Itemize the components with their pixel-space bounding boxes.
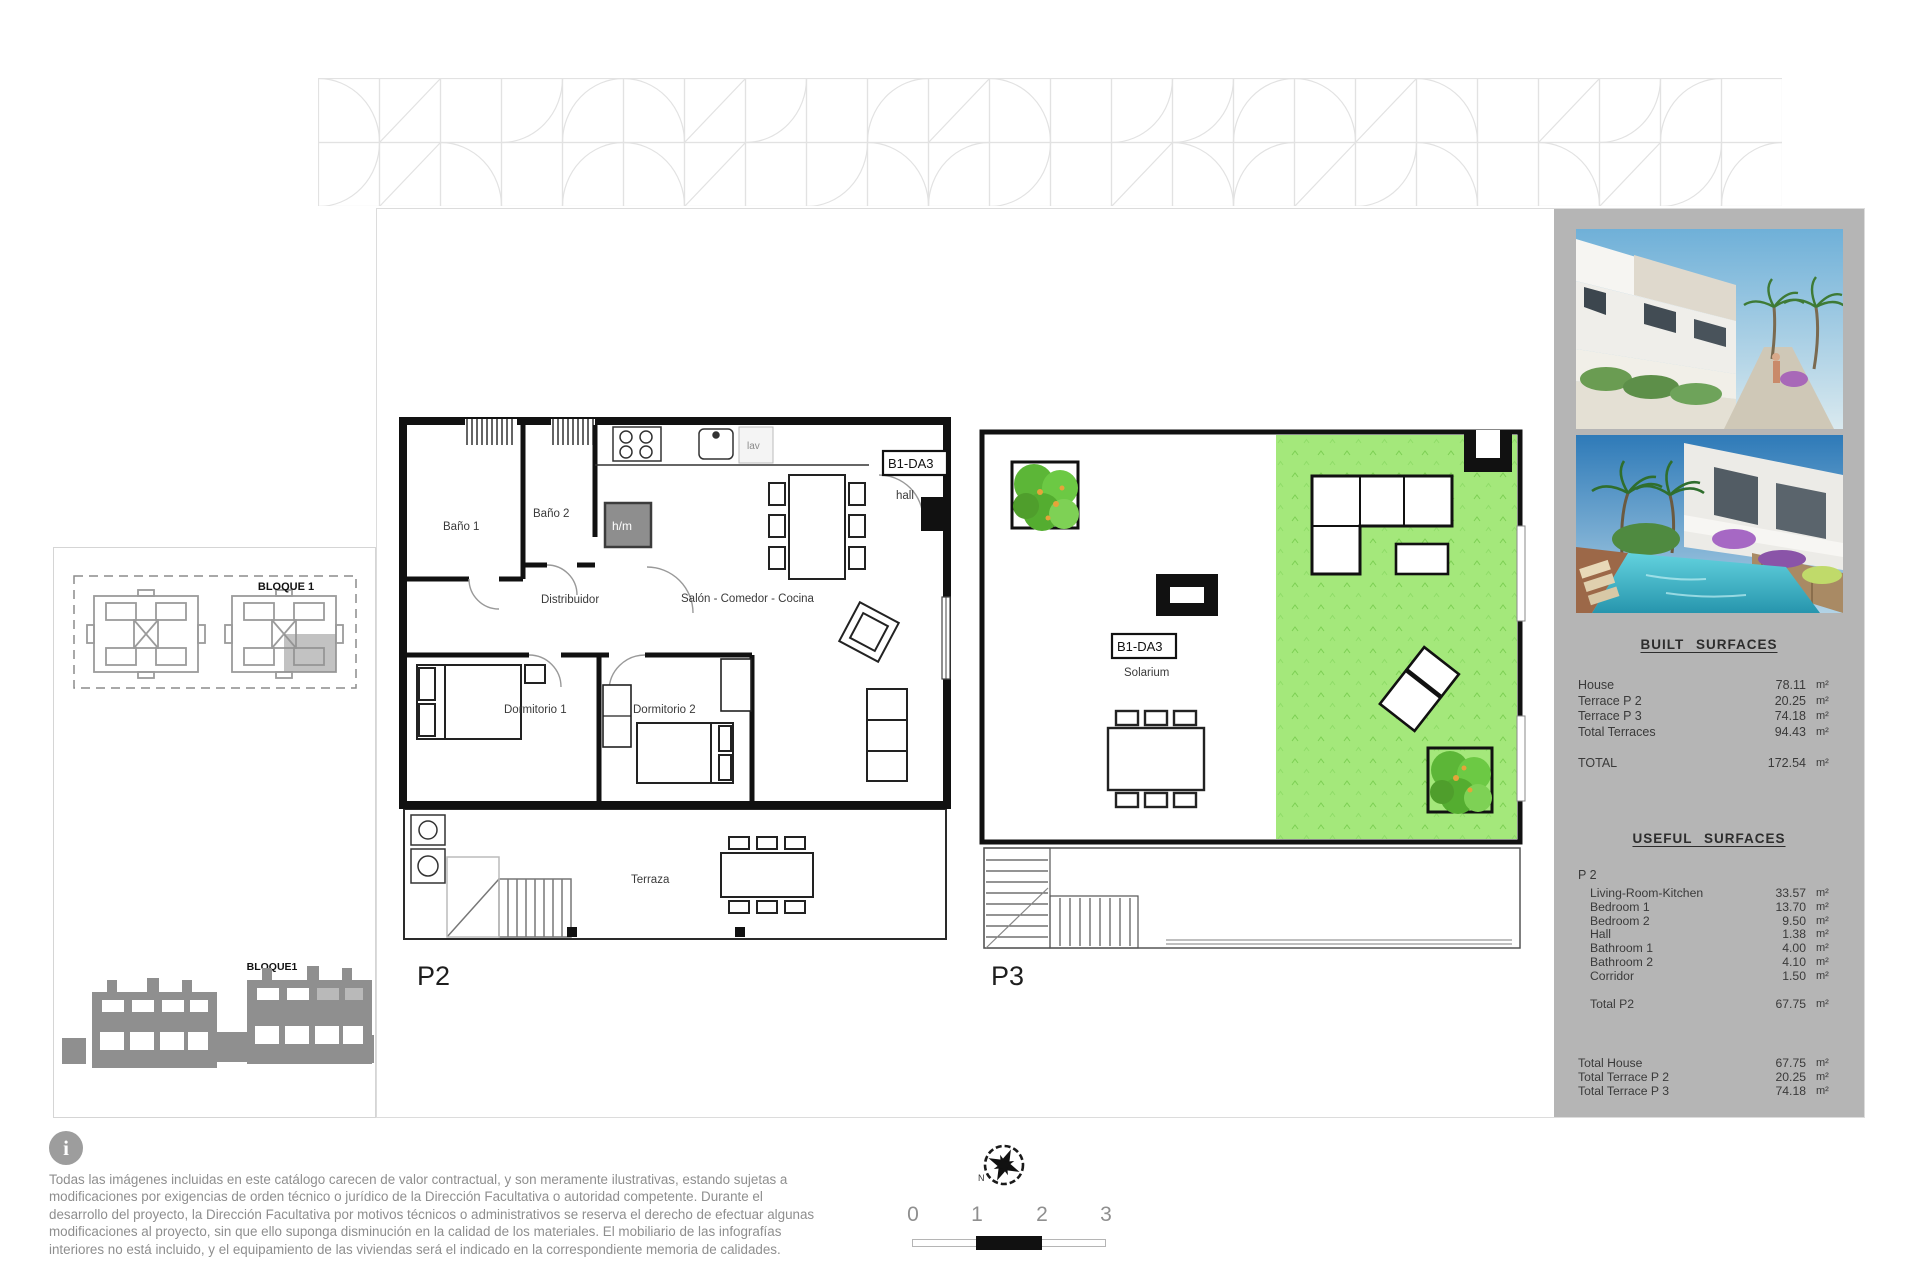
table-row: Bedroom 113.70m² xyxy=(1578,901,1840,915)
row-label: Bathroom 2 xyxy=(1578,956,1754,970)
p3-unit-tag: B1-DA3 xyxy=(1117,639,1163,654)
row-label: Terrace P 3 xyxy=(1578,709,1754,725)
row-label: Terrace P 2 xyxy=(1578,694,1754,710)
table-row: Hall1.38m² xyxy=(1578,928,1840,942)
scale-tick: 0 xyxy=(907,1203,919,1227)
p3-dining-table xyxy=(1108,711,1204,807)
room-label-terraza: Terraza xyxy=(631,874,670,886)
row-value: 67.75 xyxy=(1754,998,1806,1012)
row-unit: m² xyxy=(1806,998,1840,1012)
room-label-bano1: Baño 1 xyxy=(443,521,479,533)
scale-bar-segment xyxy=(976,1236,1042,1250)
table-row: Total Terraces94.43m² xyxy=(1578,725,1840,741)
row-value: 74.18 xyxy=(1754,1085,1806,1099)
row-value: 74.18 xyxy=(1754,709,1806,725)
hm-label: h/m xyxy=(612,519,632,533)
row-value: 94.43 xyxy=(1754,725,1806,741)
row-value: 78.11 xyxy=(1754,678,1806,694)
decorative-frieze xyxy=(318,78,1782,211)
row-unit: m² xyxy=(1806,942,1840,956)
building-footprint-2 xyxy=(225,590,343,678)
row-value: 13.70 xyxy=(1754,901,1806,915)
table-row: Total Terrace P 374.18m² xyxy=(1578,1085,1840,1099)
row-unit: m² xyxy=(1806,725,1840,741)
row-unit: m² xyxy=(1806,709,1840,725)
main-panel: lav h/m xyxy=(376,208,1865,1118)
row-unit: m² xyxy=(1806,956,1840,970)
site-plan-box: BLOQUE 1 BLOQUE1 xyxy=(53,547,376,1118)
row-unit: m² xyxy=(1806,915,1840,929)
row-value: 9.50 xyxy=(1754,915,1806,929)
render-photo-2 xyxy=(1576,435,1843,618)
building-footprint-1 xyxy=(87,590,205,678)
row-label: Bedroom 1 xyxy=(1578,901,1754,915)
row-value: 20.25 xyxy=(1754,694,1806,710)
table-total-row: TOTAL172.54m² xyxy=(1578,756,1840,772)
hall-label: hall xyxy=(896,490,914,502)
row-label: Total Terrace P 3 xyxy=(1578,1085,1754,1099)
room-label-solarium: Solarium xyxy=(1124,667,1169,679)
table-row: Total House67.75m² xyxy=(1578,1057,1840,1071)
row-unit: m² xyxy=(1806,970,1840,984)
row-unit: m² xyxy=(1806,1057,1840,1071)
row-value: 67.75 xyxy=(1754,1057,1806,1071)
row-unit: m² xyxy=(1806,694,1840,710)
room-label-distribuidor: Distribuidor xyxy=(541,594,599,606)
table-row: Bathroom 24.10m² xyxy=(1578,956,1840,970)
unit-highlight xyxy=(284,634,336,672)
room-label-dorm2: Dormitorio 2 xyxy=(633,704,696,716)
row-value: 4.00 xyxy=(1754,942,1806,956)
row-value: 20.25 xyxy=(1754,1071,1806,1085)
row-unit: m² xyxy=(1806,887,1840,901)
compass-north-label: N xyxy=(978,1173,985,1183)
floorplan-p2: lav h/m xyxy=(399,417,951,949)
row-label: Total Terraces xyxy=(1578,725,1754,741)
row-label: Total P2 xyxy=(1578,998,1754,1012)
row-value: 172.54 xyxy=(1754,756,1806,772)
row-value: 1.38 xyxy=(1754,928,1806,942)
table-row: Corridor1.50m² xyxy=(1578,970,1840,984)
row-unit: m² xyxy=(1806,1071,1840,1085)
row-value: 1.50 xyxy=(1754,970,1806,984)
dining-table xyxy=(769,475,865,579)
scale-bar: 0 1 2 3 xyxy=(905,1203,1115,1253)
scale-tick: 2 xyxy=(1036,1203,1048,1227)
info-glyph: i xyxy=(63,1136,69,1161)
bloque-label-top: BLOQUE 1 xyxy=(258,581,314,593)
p3-label: P3 xyxy=(991,961,1024,992)
row-label: Living-Room-Kitchen xyxy=(1578,887,1754,901)
row-label: Total House xyxy=(1578,1057,1754,1071)
table-row: Bathroom 14.00m² xyxy=(1578,942,1840,956)
useful-surfaces-table: USEFUL SURFACES P 2 Living-Room-Kitchen3… xyxy=(1578,831,1840,1099)
table-row: Total Terrace P 220.25m² xyxy=(1578,1071,1840,1085)
render-photo-1 xyxy=(1576,229,1843,434)
disclaimer-text: Todas las imágenes incluidas en este cat… xyxy=(49,1171,817,1258)
row-unit: m² xyxy=(1806,1085,1840,1099)
row-label: House xyxy=(1578,678,1754,694)
floorplan-p3: B1-DA3 Solarium xyxy=(976,426,1528,958)
info-icon: i xyxy=(49,1131,83,1165)
coffee-table xyxy=(1396,544,1448,574)
site-elevation: BLOQUE1 xyxy=(62,961,374,1068)
p2-unit-tag: B1-DA3 xyxy=(888,456,934,471)
row-value: 4.10 xyxy=(1754,956,1806,970)
row-label: Corridor xyxy=(1578,970,1754,984)
row-unit: m² xyxy=(1806,901,1840,915)
bloque-label-bottom: BLOQUE1 xyxy=(247,961,298,973)
table-row: Terrace P 374.18m² xyxy=(1578,709,1840,725)
floor-label: P 2 xyxy=(1578,868,1840,882)
scale-tick: 3 xyxy=(1100,1203,1112,1227)
built-surfaces-title: BUILT SURFACES xyxy=(1578,637,1840,652)
p2-label: P2 xyxy=(417,961,450,992)
surfaces-panel: BUILT SURFACES House78.11m² Terrace P 22… xyxy=(1554,209,1864,1117)
built-surfaces-table: BUILT SURFACES House78.11m² Terrace P 22… xyxy=(1578,637,1840,772)
scale-tick: 1 xyxy=(971,1203,983,1227)
table-row: House78.11m² xyxy=(1578,678,1840,694)
row-label: Bedroom 2 xyxy=(1578,915,1754,929)
useful-surfaces-title: USEFUL SURFACES xyxy=(1578,831,1840,846)
room-label-salon: Salón - Comedor - Cocina xyxy=(681,593,815,605)
row-label: Total Terrace P 2 xyxy=(1578,1071,1754,1085)
row-value: 33.57 xyxy=(1754,887,1806,901)
row-unit: m² xyxy=(1806,678,1840,694)
row-unit: m² xyxy=(1806,928,1840,942)
row-label: TOTAL xyxy=(1578,756,1754,772)
terrace-table xyxy=(721,837,813,913)
row-label: Bathroom 1 xyxy=(1578,942,1754,956)
row-label: Hall xyxy=(1578,928,1754,942)
table-row: Terrace P 220.25m² xyxy=(1578,694,1840,710)
lav-label: lav xyxy=(747,441,760,452)
skylight xyxy=(1156,574,1218,616)
table-subtotal-row: Total P267.75m² xyxy=(1578,998,1840,1012)
room-label-bano2: Baño 2 xyxy=(533,508,569,520)
table-row: Bedroom 29.50m² xyxy=(1578,915,1840,929)
row-unit: m² xyxy=(1806,756,1840,772)
compass-rose: N xyxy=(975,1136,1033,1199)
room-label-dorm1: Dormitorio 1 xyxy=(504,704,567,716)
table-row: Living-Room-Kitchen33.57m² xyxy=(1578,887,1840,901)
